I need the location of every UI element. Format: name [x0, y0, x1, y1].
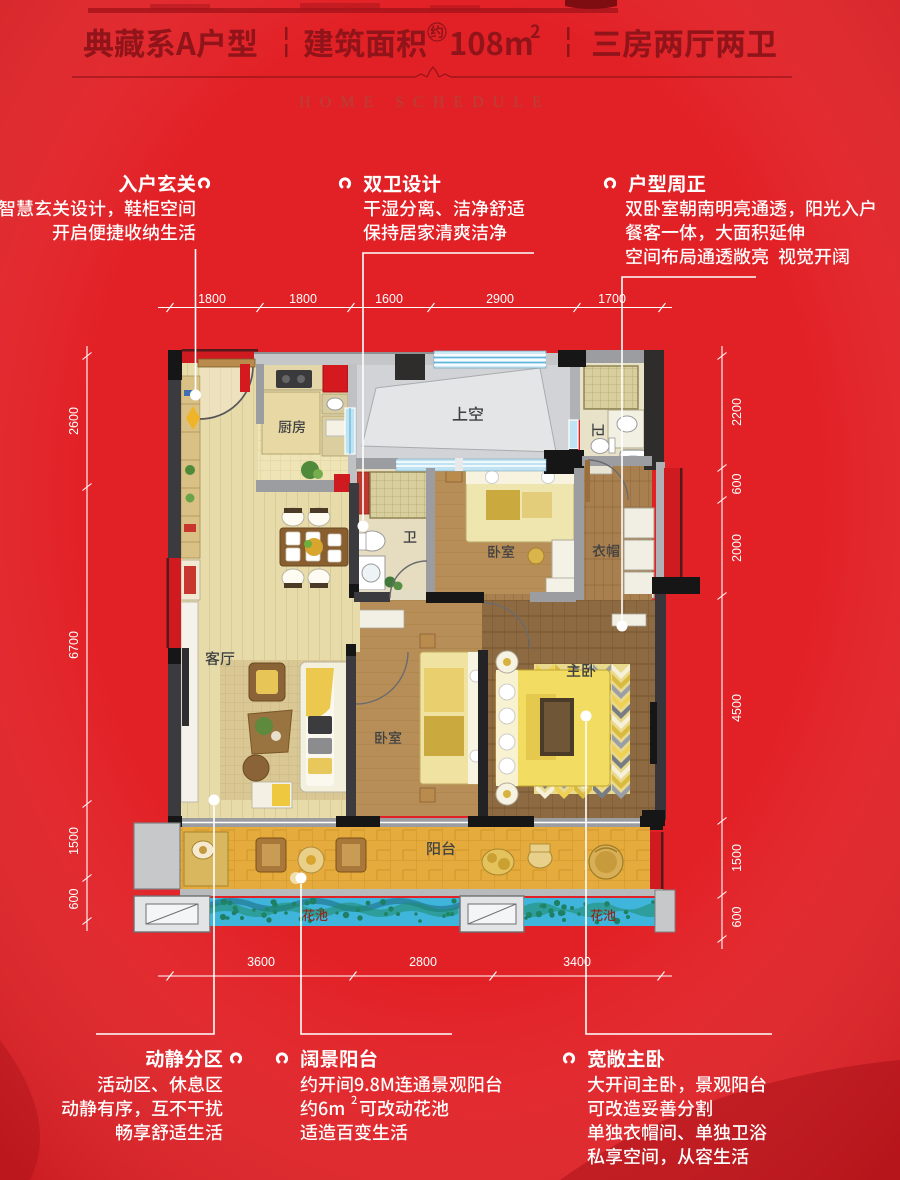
- svg-text:1800: 1800: [198, 292, 226, 306]
- svg-text:600: 600: [67, 889, 81, 910]
- svg-text:1500: 1500: [730, 844, 744, 872]
- svg-text:2200: 2200: [730, 398, 744, 426]
- svg-text:1500: 1500: [67, 827, 81, 855]
- svg-text:2800: 2800: [409, 955, 437, 969]
- svg-text:600: 600: [730, 474, 744, 495]
- svg-text:HOME SCHEDULE: HOME SCHEDULE: [299, 94, 551, 111]
- svg-text:2600: 2600: [67, 407, 81, 435]
- svg-text:6700: 6700: [67, 631, 81, 659]
- svg-text:4500: 4500: [730, 694, 744, 722]
- svg-text:600: 600: [730, 907, 744, 928]
- svg-text:2900: 2900: [486, 292, 514, 306]
- svg-text:1800: 1800: [289, 292, 317, 306]
- svg-text:3600: 3600: [247, 955, 275, 969]
- svg-text:1600: 1600: [375, 292, 403, 306]
- svg-text:2000: 2000: [730, 534, 744, 562]
